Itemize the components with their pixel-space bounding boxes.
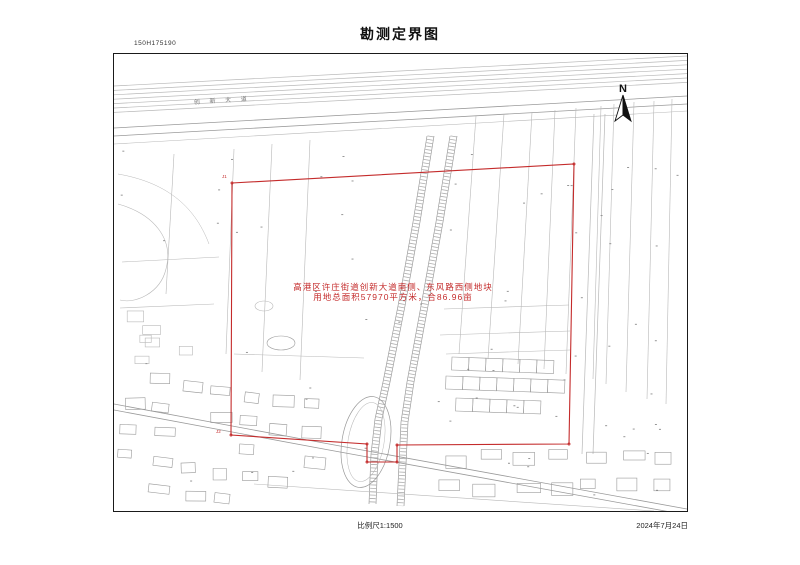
map-canvas: J1 J2 创 新 大 道 高港区许庄街道创新大道南侧、东风路西侧地块 用地总面… bbox=[114, 54, 687, 511]
survey-map-sheet: 150H175190 勘测定界图 J1 J2 创 新 大 道 高港区许庄街道创新… bbox=[0, 0, 800, 565]
north-arrow: N bbox=[615, 83, 631, 121]
boundary-point-label-1: J1 bbox=[222, 174, 227, 179]
map-frame: J1 J2 创 新 大 道 高港区许庄街道创新大道南侧、东风路西侧地块 用地总面… bbox=[113, 53, 688, 512]
scale-label: 比例尺1:1500 bbox=[320, 520, 440, 531]
north-label: N bbox=[619, 83, 627, 95]
date-label: 2024年7月24日 bbox=[596, 520, 688, 531]
parcel-annotation-line2: 用地总面积57970平方米，合86.96亩 bbox=[313, 292, 472, 302]
parcel-annotation-line1: 高港区许庄街道创新大道南侧、东风路西侧地块 bbox=[293, 282, 493, 292]
page-title: 勘测定界图 bbox=[0, 24, 800, 44]
road-name-label: 创 新 大 道 bbox=[194, 95, 251, 106]
boundary-point-label-2: J2 bbox=[216, 429, 221, 434]
